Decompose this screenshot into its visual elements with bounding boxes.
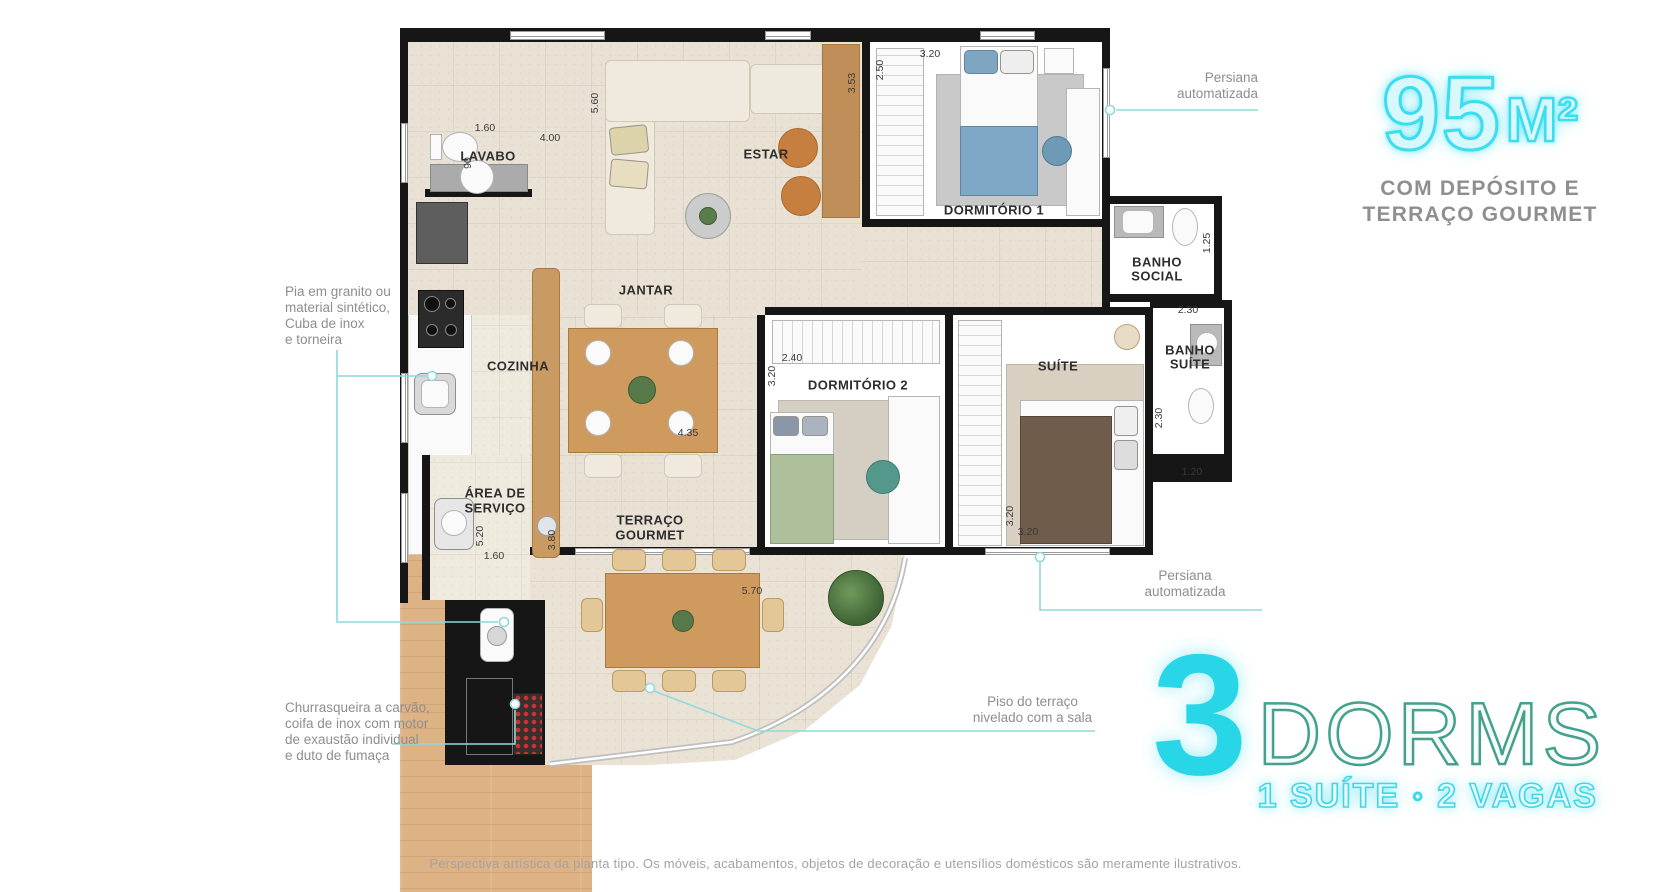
sideboard: [532, 268, 560, 558]
room-label-banho-social-2: SOCIAL: [1131, 269, 1183, 284]
room-label-banho-social-1: BANHO: [1132, 255, 1182, 270]
room-label-jantar: JANTAR: [619, 283, 673, 298]
blanket: [960, 126, 1038, 196]
wall: [862, 42, 870, 227]
terrace-chair: [612, 670, 646, 692]
blanket: [1020, 416, 1112, 544]
dim-estar-depth: 3.53: [846, 73, 858, 93]
dim-suite-width: 3.20: [1018, 526, 1038, 538]
annotation-line: material sintético,: [285, 300, 391, 316]
dim-estar-width: 4.00: [540, 132, 560, 144]
floor-plan: LAVABO ESTAR DORMITÓRIO 1 BANHO SOCIAL C…: [400, 28, 1235, 776]
window: [980, 31, 1035, 40]
entry-door: [765, 31, 811, 40]
terrace-chair: [612, 549, 646, 571]
place-setting: [585, 410, 611, 436]
hall-floor: [862, 227, 1110, 307]
room-label-banho-suite-2: SUÍTE: [1170, 357, 1210, 372]
area-unit: M²: [1506, 85, 1578, 156]
dim-banho-social-width: 2.30: [1178, 304, 1198, 316]
kitchen-sink-basin: [421, 380, 449, 408]
dining-chair: [584, 454, 622, 478]
terrace-chair: [712, 549, 746, 571]
room-label-cozinha: COZINHA: [487, 359, 549, 374]
dining-chair: [664, 454, 702, 478]
dim-estar-height: 5.60: [589, 93, 601, 113]
annotation-line: Cuba de inox: [285, 316, 391, 332]
annotation-piso: Piso do terraço nivelado com a sala: [950, 694, 1115, 726]
annotation-persiana-bottom: Persiana automatizada: [1105, 568, 1265, 600]
dim-dorm1-width: 3.20: [920, 48, 940, 60]
dim-dorm2-height: 3.20: [766, 366, 778, 386]
room-label-dormitorio2: DORMITÓRIO 2: [808, 378, 908, 393]
laundry-basin: [441, 510, 467, 536]
stove-burner: [424, 296, 440, 312]
annotation-line: Churrasqueira a carvão,: [285, 700, 430, 716]
annotation-line: nivelado com a sala: [950, 710, 1115, 726]
sink: [1122, 210, 1154, 234]
sofa: [605, 60, 750, 122]
toilet: [1172, 208, 1198, 246]
dim-banho-suite-height: 2.30: [1153, 408, 1165, 428]
dining-chair: [664, 304, 702, 328]
terrace-chair: [662, 549, 696, 571]
area-subtitle-line2: TERRAÇO GOURMET: [1300, 202, 1660, 228]
terrace-plant: [828, 570, 884, 626]
gourmet-sink-basin: [487, 626, 507, 646]
floorplan-poster: LAVABO ESTAR DORMITÓRIO 1 BANHO SOCIAL C…: [0, 0, 1671, 892]
pillow: [1114, 406, 1138, 436]
room-label-banho-suite-1: BANHO: [1165, 343, 1215, 358]
dim-terraco-height: 3.80: [546, 530, 558, 550]
dim-lavabo-width: 1.60: [475, 122, 495, 134]
dorms-label: DORMS: [1258, 694, 1606, 775]
room-label-dormitorio1: DORMITÓRIO 1: [944, 203, 1044, 218]
sofa-pillow: [609, 158, 649, 189]
wall: [1145, 308, 1153, 462]
armchair: [781, 176, 821, 216]
plant: [699, 207, 717, 225]
charcoal-grill: [513, 693, 543, 755]
room-label-terraco-2: GOURMET: [615, 528, 684, 543]
pillow: [802, 416, 828, 436]
place-setting: [585, 340, 611, 366]
ceiling-fan: [1114, 324, 1140, 350]
area-subtitle-line1: COM DEPÓSITO E: [1300, 176, 1660, 202]
dim-banho-suite-width: 1.20: [1182, 466, 1202, 478]
room-label-suite: SUÍTE: [1038, 359, 1078, 374]
stove-burner: [445, 324, 457, 336]
pillow: [964, 50, 998, 74]
annotation-persiana-top: Persiana automatizada: [1098, 70, 1258, 102]
dim-suite-height: 3.20: [1004, 506, 1016, 526]
dim-servico-width: 1.60: [484, 550, 504, 562]
area-subtitle: COM DEPÓSITO E TERRAÇO GOURMET: [1300, 176, 1660, 228]
wall: [1145, 462, 1153, 555]
pillow: [773, 416, 799, 436]
annotation-line: coifa de inox com motor: [285, 716, 430, 732]
room-label-terraco-1: TERRAÇO: [616, 513, 683, 528]
blanket: [770, 454, 834, 544]
area-headline: 95M² COM DEPÓSITO E TERRAÇO GOURMET: [1300, 62, 1660, 228]
wall: [1110, 196, 1222, 204]
annotation-line: Persiana: [1105, 568, 1265, 584]
dorms-subtitle: 1 SUÍTE ◦ 2 VAGAS: [1258, 777, 1606, 816]
annotation-line: Persiana: [1098, 70, 1258, 86]
centerpiece-plant: [672, 610, 694, 632]
dorms-number: 3: [1152, 642, 1248, 788]
nightstand: [1044, 48, 1074, 74]
automated-blind-window-suite: [985, 548, 1110, 555]
toilet: [1188, 388, 1214, 424]
dim-servico-height: 5.20: [474, 526, 486, 546]
wall: [765, 307, 1150, 315]
wall: [1102, 227, 1110, 315]
stove-burner: [426, 324, 438, 336]
area-value: 95M²: [1300, 62, 1660, 166]
pillow: [1000, 50, 1034, 74]
terrace-chair: [762, 598, 784, 632]
wall: [757, 315, 765, 555]
pillow: [1114, 440, 1138, 470]
dim-dorm2-width: 2.40: [782, 352, 802, 364]
place-setting: [668, 340, 694, 366]
annotation-line: Piso do terraço: [950, 694, 1115, 710]
dim-banho-social-height: 1.25: [1201, 233, 1213, 253]
desk-chair: [1042, 136, 1072, 166]
annotation-line: automatizada: [1105, 584, 1265, 600]
wall: [1214, 196, 1222, 302]
dorms-badge: 3 DORMS 1 SUÍTE ◦ 2 VAGAS: [1152, 642, 1605, 816]
room-label-area-servico-1: ÁREA DE: [465, 486, 526, 501]
window: [401, 123, 408, 183]
window: [510, 31, 605, 40]
desk-chair: [866, 460, 900, 494]
dim-jantar-width: 4.35: [678, 427, 698, 439]
annotation-churrasqueira: Churrasqueira a carvão, coifa de inox co…: [285, 700, 430, 764]
area-number: 95: [1382, 62, 1502, 166]
wall: [945, 315, 953, 555]
fridge: [416, 202, 468, 264]
room-label-area-servico-2: SERVIÇO: [464, 501, 525, 516]
annotation-line: e duto de fumaça: [285, 748, 430, 764]
wall: [862, 219, 1110, 227]
dim-terraco-width: 5.70: [742, 585, 762, 597]
annotation-line: Pia em granito ou: [285, 284, 391, 300]
terrace-chair: [712, 670, 746, 692]
annotation-line: de exaustão individual: [285, 732, 430, 748]
wardrobe: [958, 320, 1002, 546]
disclaimer-text: Perspectiva artística da planta tipo. Os…: [0, 856, 1671, 871]
dining-chair: [584, 304, 622, 328]
terrace-chair: [662, 670, 696, 692]
annotation-pia: Pia em granito ou material sintético, Cu…: [285, 284, 391, 348]
window: [401, 373, 408, 443]
dim-lavabo-height: 90: [462, 157, 474, 169]
annotation-line: automatizada: [1098, 86, 1258, 102]
room-label-estar: ESTAR: [743, 147, 788, 162]
wall: [1224, 308, 1232, 462]
dim-dorm1-height: 2.50: [874, 60, 886, 80]
sofa-pillow: [609, 124, 650, 156]
tv-console: [822, 44, 860, 218]
duct-shaft: [466, 678, 513, 755]
wall: [1150, 454, 1232, 462]
stove-burner: [445, 298, 456, 309]
centerpiece-plant: [628, 376, 656, 404]
annotation-line: e torneira: [285, 332, 391, 348]
terrace-chair: [581, 598, 603, 632]
toilet-tank: [430, 134, 442, 160]
wall: [422, 455, 430, 600]
window: [401, 493, 408, 563]
